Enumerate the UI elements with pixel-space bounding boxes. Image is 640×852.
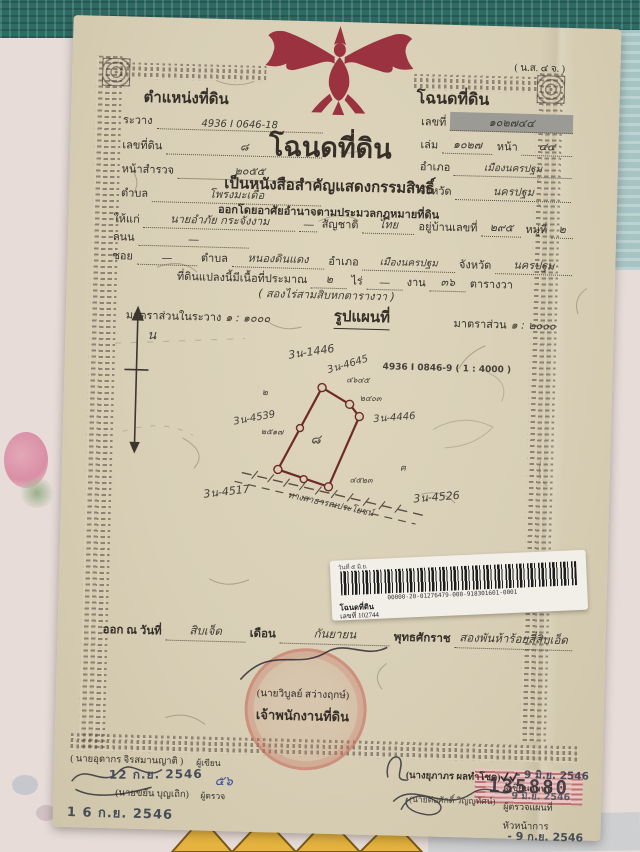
address-value: ๒๙๕ xyxy=(481,218,521,238)
photo-background: ( น.ส. ๔ จ. ) ตำแหน่งที่ดิน ระวาง 4936 I… xyxy=(0,0,640,852)
field-label: หน้าสำรวจ xyxy=(121,159,174,178)
deed-document: ( น.ส. ๔ จ. ) ตำแหน่งที่ดิน ระวาง 4936 I… xyxy=(52,15,621,841)
survey-mark: ๔๖๔๕ xyxy=(346,373,370,387)
title-subtitle-1: เป็นหนังสือสำคัญแสดงกรรมสิทธิ์ xyxy=(189,170,470,201)
survey-mark: ๒ xyxy=(262,385,268,399)
fabric-leaf xyxy=(20,478,54,508)
date-stamp-2: 1 6 ก.ย. 2546 xyxy=(67,801,174,825)
date-stamp-head: - 9 ก.ย. 2546 xyxy=(507,827,583,847)
date-stamp-1: 12 ก.ย. 2546 xyxy=(109,765,203,785)
sticker-deed-number: เลขที่ 102744 xyxy=(340,610,379,623)
survey-mark: ๔๕๒๓ xyxy=(349,473,372,487)
map-label: 3น-4526 xyxy=(413,486,461,508)
barcode-sticker: วันที่ ๕ มิ.ย. 00000-20-01276479-000-918… xyxy=(330,550,588,621)
field-label: อำเภอ xyxy=(328,252,359,271)
field-label: พุทธศักราช xyxy=(394,629,451,648)
document-title-block: โฉนดที่ดิน เป็นหนังสือสำคัญแสดงกรรมสิทธิ… xyxy=(188,122,470,224)
issue-year: สองพันห้าร้อยสี่สิบเอ็ด xyxy=(454,629,572,651)
field-value: นครปฐม xyxy=(455,181,571,203)
field-label: หมู่ที่ xyxy=(525,220,547,239)
field-label: ออก ณ วันที่ xyxy=(102,621,162,641)
survey-mark: ฅ xyxy=(400,461,406,475)
north-label: น xyxy=(147,324,156,345)
field-label: อยู่บ้านเลขที่ xyxy=(418,217,477,237)
field-label: สัญชาติ xyxy=(321,215,358,234)
field-label: ตำบล xyxy=(121,183,149,202)
registrar-role: เจ้าพนักงานที่ดิน xyxy=(222,703,382,728)
field-label: จังหวัด xyxy=(459,255,492,274)
field-value: เมืองนครปฐม xyxy=(454,160,572,179)
dash-mark: — xyxy=(299,218,317,232)
moo-value: ๒ xyxy=(551,220,573,240)
garuda-emblem xyxy=(263,22,415,118)
field-label: ระวาง xyxy=(123,110,153,129)
rosette-ornament-right xyxy=(537,75,566,104)
field-label: ตำบล xyxy=(201,248,229,267)
map-checker-role: ผู้ตรวจแผนที่ xyxy=(503,799,553,814)
deed-box-title: โฉนดที่ดิน xyxy=(416,86,489,113)
fabric-dot xyxy=(12,775,38,795)
nationality-value: ไทย xyxy=(362,215,414,235)
tambon-value: หนองดินแดง xyxy=(232,248,325,269)
field-label: หน้า xyxy=(497,137,518,156)
page-title: โฉนดที่ดิน xyxy=(190,122,471,172)
field-label: ซอย xyxy=(112,246,133,265)
issue-day: สิบเจ็ด xyxy=(165,622,245,643)
form-code: ( น.ส. ๔ จ. ) xyxy=(514,61,565,77)
survey-mark: ๒๕๑๗ xyxy=(261,425,284,439)
field-label: ให้แก่ xyxy=(113,209,140,228)
field-label: ถนน xyxy=(113,227,135,246)
rosette-ornament-left xyxy=(102,58,131,87)
map-checker-name: (นายต่อศักดิ์ วิญญูทัศน์) xyxy=(409,792,495,808)
checker-role: ผู้ตรวจ xyxy=(200,789,225,804)
parcel-number: ๘ xyxy=(310,428,321,449)
checker-name: (นายขยัน บุญเถิก) xyxy=(115,785,189,802)
field-label: เลขที่ดิน xyxy=(122,135,162,154)
field-label: ตารางวา xyxy=(470,274,514,293)
position-box-title: ตำแหน่งที่ดิน xyxy=(143,85,229,111)
field-value: ๔๔ xyxy=(522,137,573,157)
soi-value: — xyxy=(137,251,197,267)
survey-mark: ๒๔๐๓ xyxy=(360,392,382,406)
province-value: นครปฐม xyxy=(495,255,572,276)
parcel-map: น ๘ 3น-1446 3น-4645 4936 I 0846-9 ( 1 : … xyxy=(90,301,576,543)
